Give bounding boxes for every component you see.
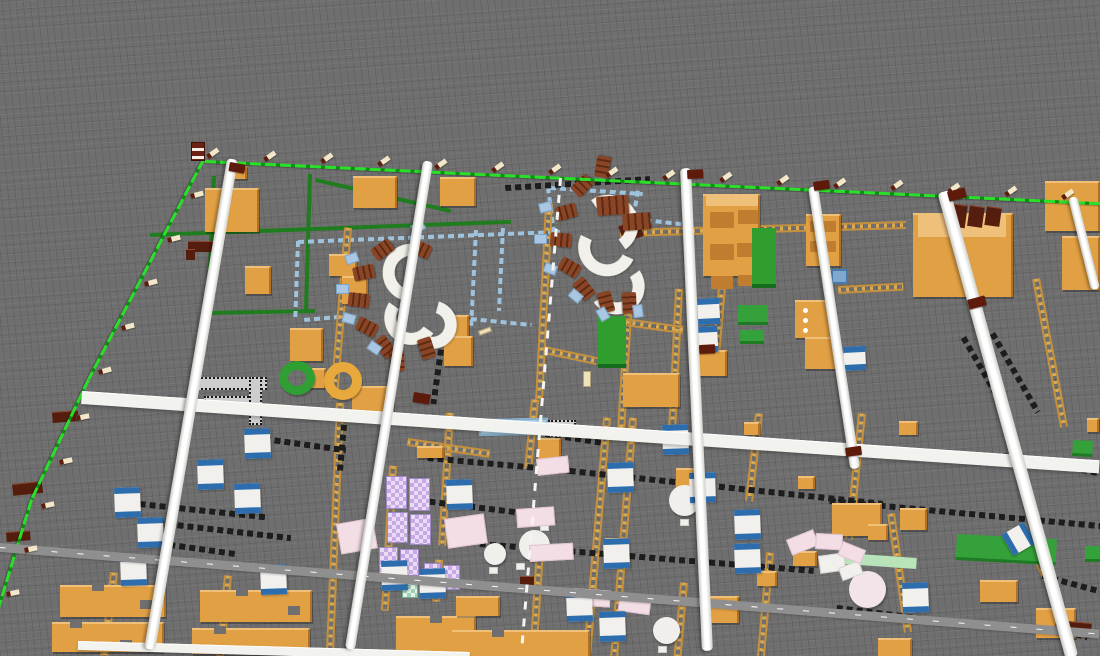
desk-row[interactable] [878,638,912,656]
orange-block[interactable] [798,476,815,489]
orange-block[interactable] [900,508,927,530]
brown-table[interactable] [622,212,651,231]
machine[interactable] [607,462,634,493]
notch [92,583,104,591]
stick [583,371,591,387]
orange-block[interactable] [899,421,918,435]
machine[interactable] [734,509,761,540]
orange-block[interactable] [868,524,888,540]
green-table[interactable] [752,228,776,288]
brown-table[interactable] [596,195,629,216]
machine[interactable] [697,298,720,325]
chair-blue[interactable] [336,284,349,294]
notch [492,628,504,637]
round-table[interactable] [484,543,506,565]
green-flat[interactable] [738,305,768,325]
green-flat[interactable] [1085,546,1100,562]
seat[interactable] [738,210,758,224]
orange-block[interactable] [245,266,271,294]
chair-white[interactable] [680,519,689,526]
orange-block[interactable] [757,571,777,586]
machine[interactable] [603,538,630,569]
machine[interactable] [137,517,164,548]
orange-block[interactable] [290,328,323,361]
blue-box[interactable] [831,269,848,284]
sculpture-green[interactable] [279,361,315,395]
notch [430,614,442,623]
seat[interactable] [710,212,734,228]
pink-table[interactable] [529,543,574,562]
shelf-rack[interactable] [249,377,262,425]
bed-purple[interactable] [409,478,430,511]
dot [803,328,808,333]
machine[interactable] [197,459,224,490]
notch [288,606,300,615]
orange-block[interactable] [623,373,680,407]
desk-row[interactable] [456,596,500,616]
orange-block[interactable] [744,422,760,435]
orange-table-top [706,194,758,206]
pillar-band [699,344,715,354]
machine[interactable] [734,543,761,574]
seat[interactable] [710,244,734,260]
orange-block[interactable] [353,176,397,208]
notch [70,620,82,628]
chair-blue[interactable] [632,304,644,318]
corner-post[interactable] [191,142,205,161]
orange-block[interactable] [440,177,476,206]
machine[interactable] [234,483,261,514]
dot [803,318,808,323]
bed-purple[interactable] [387,512,408,543]
pillar-band [687,169,703,179]
dot [803,308,808,313]
notch [214,626,226,634]
machine[interactable] [114,487,141,518]
machine[interactable] [902,582,929,613]
orange-block[interactable] [1087,418,1099,432]
bed-purple[interactable] [410,514,431,545]
machine[interactable] [244,428,271,459]
orange-block[interactable] [980,580,1018,602]
bench-leg[interactable] [186,249,195,260]
green-flat[interactable] [740,330,764,344]
seat[interactable] [711,276,733,289]
machine[interactable] [446,479,473,510]
machine[interactable] [599,611,626,642]
orange-block[interactable] [417,446,444,458]
green-rack[interactable] [598,316,626,368]
green-flat[interactable] [1072,440,1093,457]
dark-box[interactable] [967,205,985,228]
chair-white[interactable] [658,646,667,653]
chair-blue[interactable] [534,234,547,244]
pink-table[interactable] [815,533,843,550]
pink-table[interactable] [536,456,570,476]
round-table[interactable] [653,617,680,644]
sculpture-orange[interactable] [324,362,362,400]
chair-white[interactable] [489,567,498,574]
machine[interactable] [843,346,866,371]
scene[interactable] [0,0,1100,656]
pink-table[interactable] [444,513,488,548]
chair-white[interactable] [516,563,525,570]
bed-purple[interactable] [386,476,407,509]
notch [236,588,248,596]
dark-box[interactable] [984,206,1001,227]
chair-brown[interactable] [348,292,370,308]
pink-table[interactable] [516,506,555,528]
